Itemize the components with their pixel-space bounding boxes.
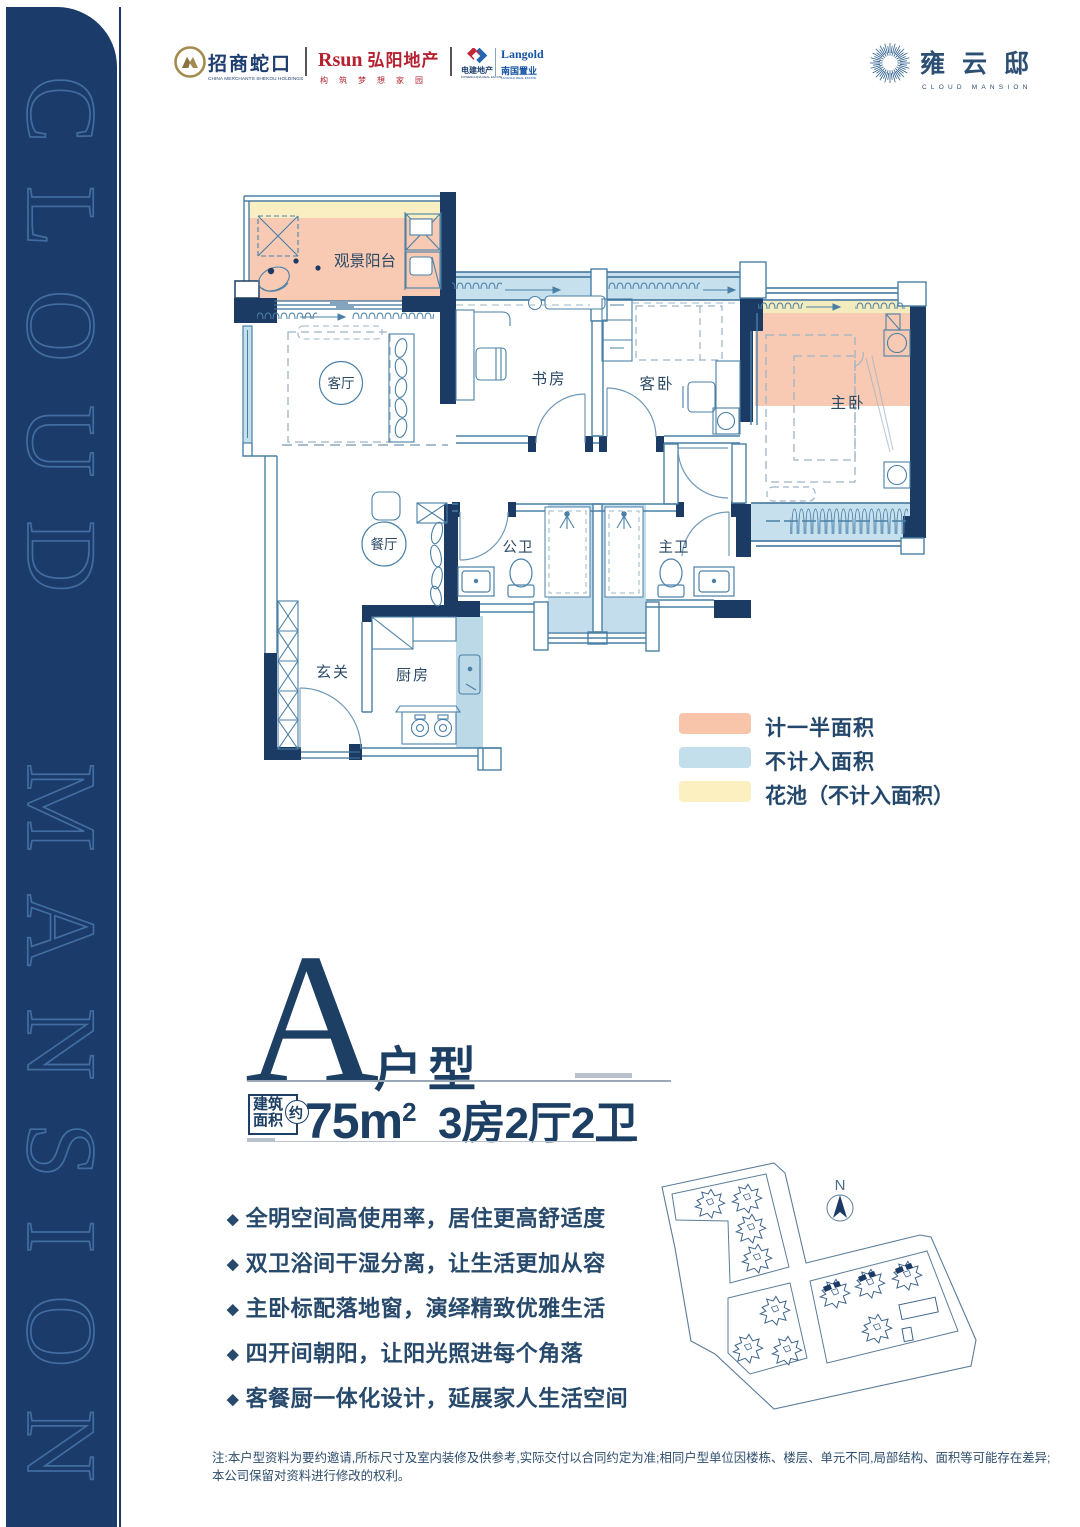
svg-text:客卧: 客卧 [639,375,674,393]
svg-text:餐厅: 餐厅 [371,537,398,552]
svg-text:主卫: 主卫 [659,539,690,556]
svg-text:玄关: 玄关 [316,664,350,681]
svg-text:N: N [835,1177,846,1194]
svg-text:公卫: 公卫 [503,540,534,556]
svg-text:主卧: 主卧 [830,394,865,412]
svg-text:厨房: 厨房 [396,667,430,684]
svg-text:书房: 书房 [531,370,566,388]
svg-text:观景阳台: 观景阳台 [334,252,396,270]
svg-text:客厅: 客厅 [328,375,355,391]
